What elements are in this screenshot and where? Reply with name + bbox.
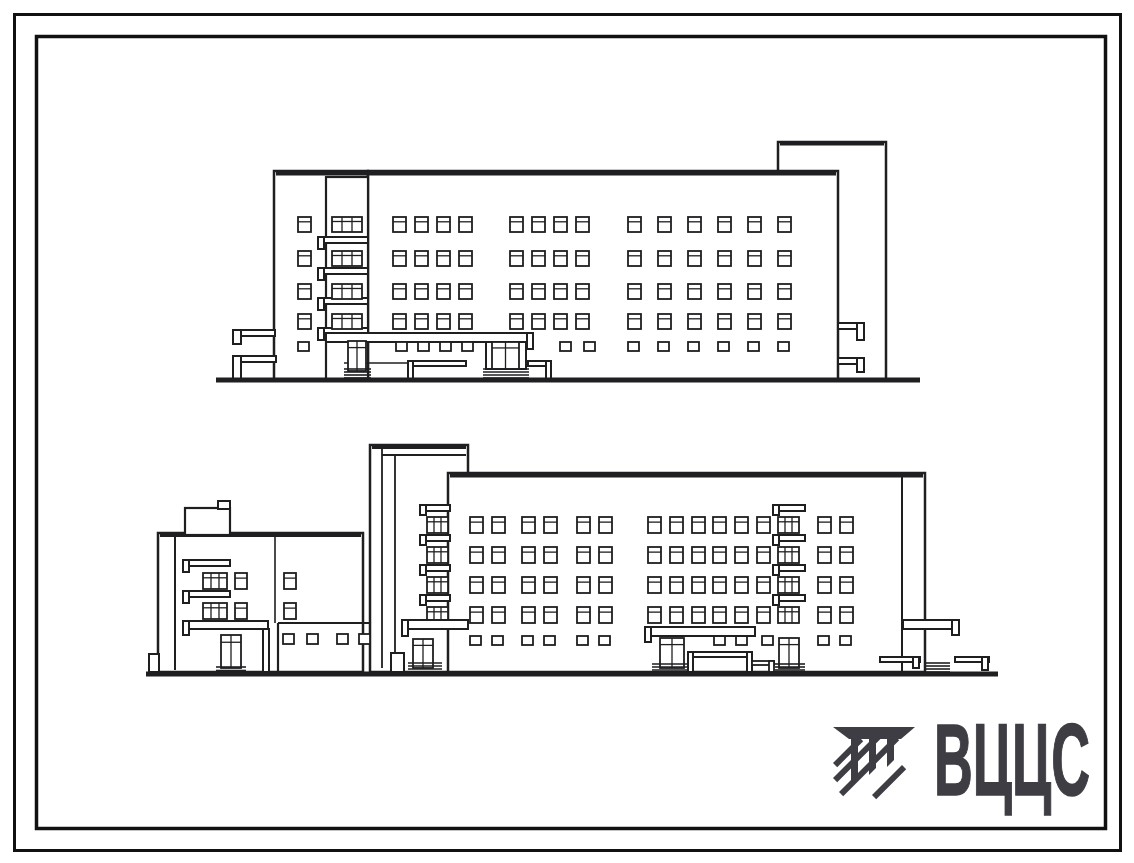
facade-element xyxy=(773,505,779,515)
porch-wall xyxy=(408,361,466,366)
window xyxy=(577,577,590,593)
small-window xyxy=(688,342,699,351)
window xyxy=(554,251,567,266)
window xyxy=(692,577,705,593)
window xyxy=(522,517,535,533)
small-window xyxy=(462,342,473,351)
vtsts-logo-mark-icon xyxy=(833,737,863,767)
roof-stack xyxy=(218,501,230,509)
window xyxy=(544,517,557,533)
window xyxy=(544,607,557,623)
window xyxy=(718,314,731,329)
window xyxy=(748,251,761,266)
window xyxy=(670,607,683,623)
main-block xyxy=(368,171,838,380)
window xyxy=(628,284,641,299)
porch-wall xyxy=(688,652,752,657)
window xyxy=(298,251,311,266)
window xyxy=(393,284,406,299)
window xyxy=(532,217,545,232)
entrance-canopy xyxy=(903,620,959,629)
small-window xyxy=(714,636,725,645)
facade-element xyxy=(688,652,693,672)
window xyxy=(437,251,450,266)
retaining-wall xyxy=(240,330,275,336)
balcony-window xyxy=(778,577,799,593)
facade-element xyxy=(420,565,426,575)
window xyxy=(415,314,428,329)
small-window xyxy=(560,342,571,351)
window xyxy=(470,607,483,623)
balcony-window xyxy=(778,607,799,623)
small-window xyxy=(359,634,370,644)
window xyxy=(235,573,247,589)
facade-element xyxy=(769,661,774,672)
facade-element xyxy=(982,657,988,670)
window xyxy=(470,517,483,533)
wing-stair-tower xyxy=(185,508,230,535)
window xyxy=(735,517,748,533)
small-window xyxy=(762,636,773,645)
window xyxy=(648,607,661,623)
window xyxy=(576,284,589,299)
facade-element xyxy=(645,627,651,642)
small-window xyxy=(748,342,759,351)
window xyxy=(648,577,661,593)
window xyxy=(459,251,472,266)
facade-element xyxy=(233,330,241,344)
facade-element xyxy=(420,535,426,545)
small-window xyxy=(283,634,294,644)
small-window xyxy=(599,636,610,645)
balcony-window xyxy=(332,314,362,329)
balcony-window xyxy=(427,577,448,593)
balcony-slab xyxy=(318,268,368,274)
facade-element xyxy=(952,620,959,635)
balcony-window xyxy=(427,517,448,533)
facade-element xyxy=(318,237,324,249)
window xyxy=(577,547,590,563)
window xyxy=(692,547,705,563)
window xyxy=(492,607,505,623)
window xyxy=(415,217,428,232)
entrance-canopy xyxy=(645,627,755,636)
small-window xyxy=(778,342,789,351)
window xyxy=(459,284,472,299)
small-window xyxy=(736,636,747,645)
window xyxy=(692,607,705,623)
window xyxy=(510,284,523,299)
window xyxy=(599,547,612,563)
window xyxy=(576,314,589,329)
window xyxy=(492,517,505,533)
window xyxy=(748,217,761,232)
window xyxy=(757,517,770,533)
window xyxy=(628,314,641,329)
facade-element xyxy=(183,591,189,603)
window xyxy=(757,547,770,563)
window xyxy=(818,607,831,623)
window xyxy=(628,217,641,232)
window xyxy=(470,547,483,563)
small-window xyxy=(492,636,503,645)
window xyxy=(748,284,761,299)
window xyxy=(628,251,641,266)
balcony-window xyxy=(427,547,448,563)
window xyxy=(840,547,853,563)
window xyxy=(522,547,535,563)
small-window xyxy=(577,636,588,645)
window xyxy=(532,284,545,299)
facade-element xyxy=(773,565,779,575)
small-window xyxy=(470,636,481,645)
facade-element xyxy=(420,595,426,605)
balcony-slab xyxy=(318,237,368,243)
vtsts-logo-mark-icon xyxy=(872,765,906,799)
facade-element xyxy=(318,268,324,280)
window xyxy=(713,607,726,623)
balcony-window xyxy=(332,217,362,232)
window xyxy=(670,577,683,593)
small-window xyxy=(840,636,851,645)
facade-element xyxy=(913,657,919,668)
window xyxy=(840,607,853,623)
window xyxy=(437,217,450,232)
window xyxy=(470,577,483,593)
window xyxy=(599,607,612,623)
window xyxy=(718,251,731,266)
facade-element xyxy=(773,535,779,545)
small-window xyxy=(718,342,729,351)
facade-element xyxy=(233,356,241,380)
window xyxy=(713,517,726,533)
window xyxy=(735,607,748,623)
window xyxy=(818,547,831,563)
window xyxy=(599,517,612,533)
facade-element xyxy=(183,621,189,635)
balcony-slab xyxy=(183,591,230,597)
wing-canopy xyxy=(183,621,268,629)
small-window xyxy=(337,634,348,644)
vtsts-logo: ВЦЦС xyxy=(833,703,1090,817)
window xyxy=(658,284,671,299)
wall-plinth xyxy=(149,654,159,672)
small-window xyxy=(307,634,318,644)
window xyxy=(522,607,535,623)
window xyxy=(670,517,683,533)
balcony-window xyxy=(203,573,227,589)
window xyxy=(718,217,731,232)
window xyxy=(688,284,701,299)
window xyxy=(757,607,770,623)
window xyxy=(818,517,831,533)
window xyxy=(648,547,661,563)
small-window xyxy=(396,342,407,351)
window xyxy=(393,251,406,266)
window xyxy=(840,517,853,533)
window xyxy=(554,217,567,232)
window xyxy=(437,284,450,299)
small-window xyxy=(818,636,829,645)
window xyxy=(393,314,406,329)
vtsts-logo-mark-icon xyxy=(833,727,915,799)
window xyxy=(554,284,567,299)
facade-element xyxy=(857,323,864,340)
window xyxy=(298,217,311,232)
window xyxy=(576,217,589,232)
window xyxy=(748,314,761,329)
window xyxy=(415,251,428,266)
window xyxy=(778,251,791,266)
balcony-window xyxy=(332,284,362,299)
balcony-slab xyxy=(183,560,230,566)
drawing-canvas: ВЦЦС xyxy=(0,0,1134,863)
small-window xyxy=(584,342,595,351)
shaft-foot xyxy=(391,653,404,672)
facade-element xyxy=(318,328,324,340)
window xyxy=(284,603,296,619)
small-window xyxy=(440,342,451,351)
window xyxy=(778,217,791,232)
balcony-window xyxy=(778,547,799,563)
window xyxy=(544,547,557,563)
window xyxy=(778,284,791,299)
facade-element xyxy=(318,298,324,310)
balcony-window xyxy=(203,603,227,619)
window xyxy=(713,547,726,563)
window xyxy=(599,577,612,593)
window xyxy=(510,251,523,266)
balcony-window xyxy=(778,517,799,533)
main-block xyxy=(448,473,925,672)
window xyxy=(818,577,831,593)
window xyxy=(284,573,296,589)
window xyxy=(658,217,671,232)
entrance-canopy xyxy=(402,620,468,629)
window xyxy=(658,314,671,329)
top-facade-elevation xyxy=(216,142,920,380)
small-window xyxy=(544,636,555,645)
window xyxy=(648,517,661,533)
window xyxy=(670,547,683,563)
facade-element xyxy=(546,361,551,379)
window xyxy=(554,314,567,329)
window xyxy=(459,217,472,232)
window xyxy=(688,314,701,329)
window xyxy=(718,284,731,299)
facade-element xyxy=(408,361,413,380)
window xyxy=(510,314,523,329)
window xyxy=(577,607,590,623)
window xyxy=(459,314,472,329)
window xyxy=(532,251,545,266)
window xyxy=(658,251,671,266)
window xyxy=(510,217,523,232)
window xyxy=(577,517,590,533)
small-window xyxy=(298,342,309,351)
window xyxy=(415,284,428,299)
window xyxy=(437,314,450,329)
window xyxy=(713,577,726,593)
facade-element xyxy=(857,358,864,372)
window xyxy=(522,577,535,593)
window xyxy=(688,251,701,266)
window xyxy=(492,577,505,593)
facade-element xyxy=(527,333,533,349)
window xyxy=(576,251,589,266)
window xyxy=(393,217,406,232)
window xyxy=(298,314,311,329)
window xyxy=(544,577,557,593)
window xyxy=(840,577,853,593)
window xyxy=(735,577,748,593)
window xyxy=(692,517,705,533)
facade-element xyxy=(402,620,408,636)
facade-element xyxy=(263,629,269,672)
window xyxy=(298,284,311,299)
facade-element xyxy=(420,505,426,515)
balcony-window xyxy=(332,251,362,266)
small-window xyxy=(418,342,429,351)
small-window xyxy=(628,342,639,351)
window xyxy=(492,547,505,563)
facade-element xyxy=(183,560,189,572)
window xyxy=(778,314,791,329)
window xyxy=(532,314,545,329)
vtsts-logo-text: ВЦЦС xyxy=(934,703,1090,817)
drawing-sheet: ВЦЦС xyxy=(0,0,1134,863)
window xyxy=(735,547,748,563)
bottom-facade-elevation xyxy=(146,445,998,674)
window xyxy=(757,577,770,593)
window xyxy=(235,603,247,619)
small-window xyxy=(658,342,669,351)
small-window xyxy=(522,636,533,645)
facade-element xyxy=(773,595,779,605)
window xyxy=(688,217,701,232)
